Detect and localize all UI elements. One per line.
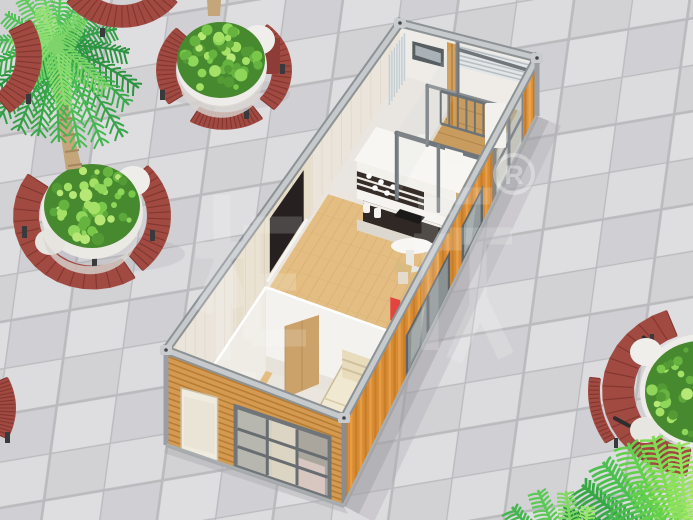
svg-text:R: R (504, 160, 524, 190)
